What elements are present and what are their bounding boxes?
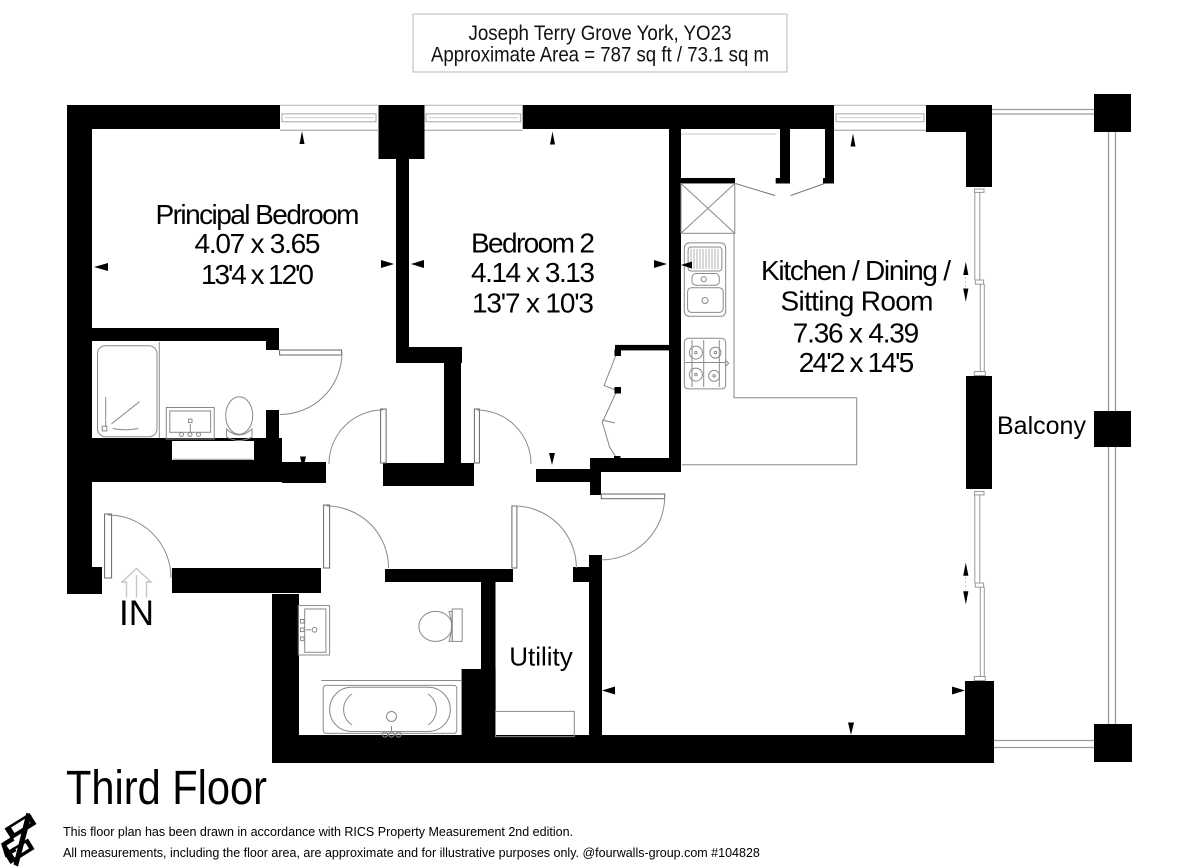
svg-text:7.36 x 4.39: 7.36 x 4.39 [793, 318, 920, 349]
svg-text:Bedroom 2: Bedroom 2 [471, 228, 595, 259]
svg-text:All measurements, including th: All measurements, including the floor ar… [63, 846, 760, 860]
svg-text:IN: IN [119, 594, 154, 633]
svg-text:4.14 x 3.13: 4.14 x 3.13 [471, 257, 595, 288]
svg-text:Joseph Terry Grove York, YO23: Joseph Terry Grove York, YO23 [469, 22, 732, 45]
svg-text:Third Floor: Third Floor [66, 762, 267, 815]
svg-text:Utility: Utility [509, 642, 573, 672]
svg-text:4.07 x 3.65: 4.07 x 3.65 [195, 228, 321, 259]
svg-text:Kitchen / Dining /: Kitchen / Dining / [761, 255, 951, 286]
svg-text:Sitting Room: Sitting Room [781, 286, 934, 317]
svg-text:13'7 x 10'3: 13'7 x 10'3 [472, 288, 594, 319]
svg-text:24'2 x 14'5: 24'2 x 14'5 [799, 347, 915, 378]
svg-text:Approximate Area = 787 sq ft /: Approximate Area = 787 sq ft / 73.1 sq m [431, 44, 769, 67]
svg-text:13'4 x 12'0: 13'4 x 12'0 [201, 259, 314, 290]
svg-text:Principal Bedroom: Principal Bedroom [156, 199, 360, 230]
svg-text:This floor plan has been drawn: This floor plan has been drawn in accord… [63, 825, 573, 839]
svg-text:Balcony: Balcony [997, 412, 1086, 440]
